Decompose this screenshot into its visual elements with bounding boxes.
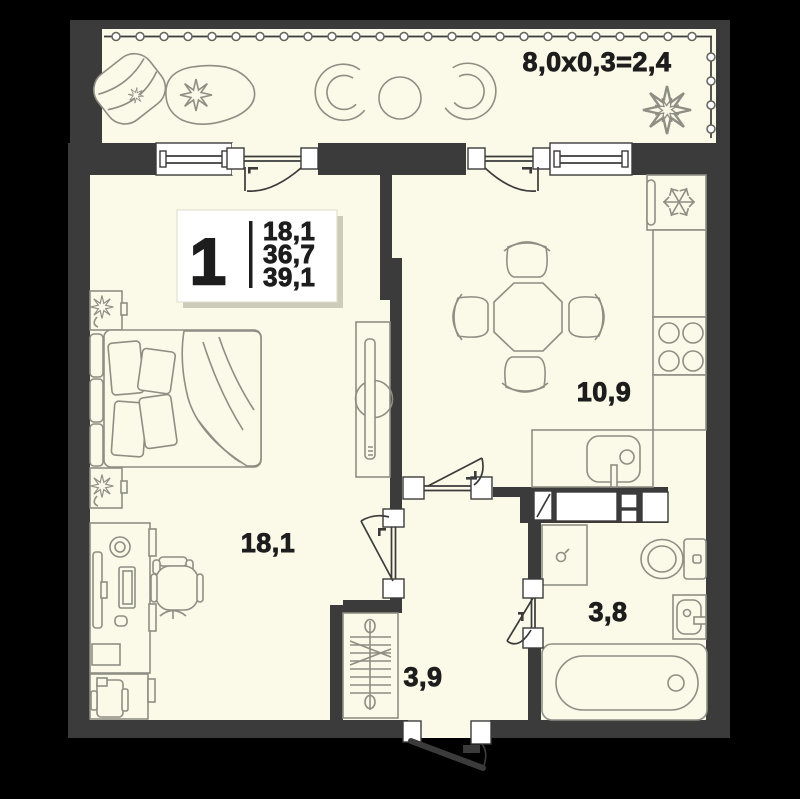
door-handle	[463, 745, 480, 753]
balcony-top-wall	[70, 20, 730, 29]
floor-plan: 8,0x0,3=2,4	[0, 0, 800, 799]
tv	[365, 339, 375, 459]
pillow	[139, 394, 178, 449]
floor-plan-page: 8,0x0,3=2,4	[0, 0, 800, 799]
balcony-area-label: 8,0x0,3=2,4	[523, 47, 672, 77]
balcony-right-wall	[716, 20, 730, 143]
living-room-area-label: 18,1	[241, 528, 296, 558]
balcony-plant	[643, 86, 691, 134]
mouse	[115, 616, 127, 626]
bathtub	[542, 644, 707, 720]
shower-unit	[542, 525, 587, 585]
balcony: 8,0x0,3=2,4	[70, 20, 730, 143]
kitchen-counter-right-low	[653, 375, 706, 430]
hallway-area-label: 3,9	[403, 662, 442, 692]
paper	[92, 644, 120, 665]
pillow	[137, 348, 176, 394]
desk	[90, 523, 156, 673]
nightstand-top	[90, 291, 127, 330]
total-area-value: 39,1	[263, 262, 315, 292]
plant-icon	[90, 295, 113, 318]
plant-icon	[180, 79, 212, 111]
kitchen-window	[550, 143, 632, 175]
bathroom-area-label: 3,8	[588, 597, 627, 627]
stove	[653, 317, 706, 375]
wardrobe	[343, 613, 398, 718]
nightstand-bottom	[90, 468, 127, 508]
fridge	[647, 175, 706, 230]
kitchen-sink-counter	[532, 430, 653, 487]
unit-info-card: 1 18,1 36,7 39,1	[177, 210, 343, 308]
bed	[90, 330, 261, 467]
plant-icon	[90, 474, 113, 497]
toilet	[641, 539, 706, 579]
pc-cabinet	[90, 674, 155, 719]
dining-table	[494, 283, 562, 351]
bathroom-sink	[673, 595, 706, 639]
kitchen-counter-right	[653, 230, 706, 317]
rooms-count: 1	[190, 225, 226, 298]
kitchen-area-label: 10,9	[577, 377, 632, 407]
tv-unit	[356, 322, 393, 477]
card-divider	[249, 221, 253, 288]
living-window	[156, 143, 232, 175]
